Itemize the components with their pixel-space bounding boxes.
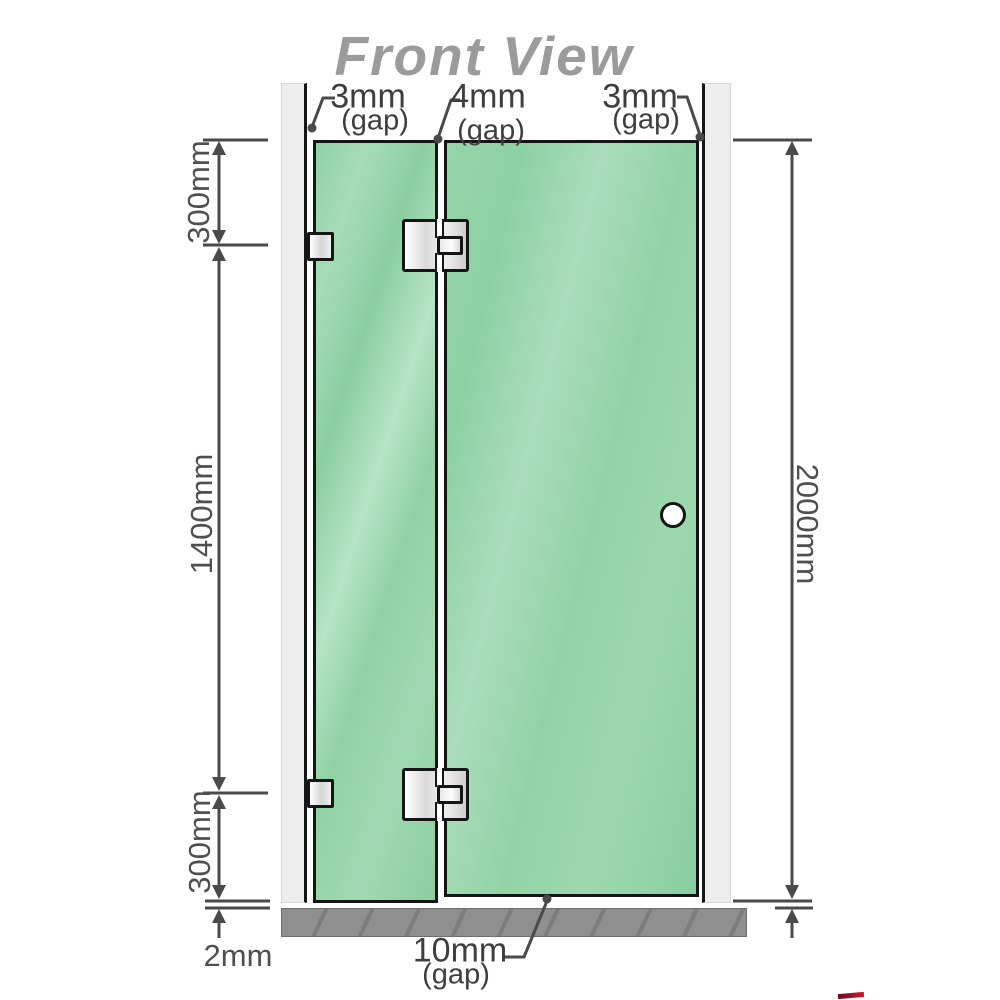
glass-hinge-top [402,219,469,272]
label-bottom-gap-qualifier: (gap) [422,959,490,992]
dim-overall-height: 2000mm [789,464,825,585]
label-right-gap-qualifier: (gap) [612,104,680,137]
hinge-slot [435,802,444,821]
dim-middle-segment: 1400mm [184,454,220,575]
door-knob [660,502,686,528]
label-middle-gap-qualifier: (gap) [457,115,525,148]
floor [281,908,747,937]
hinge-notch [437,785,463,804]
left-wall [281,83,307,903]
hinge-notch [437,236,463,255]
label-middle-gap-value: 4mm [450,78,526,117]
dim-bottom-segment: 300mm [182,790,218,893]
label-left-gap-qualifier: (gap) [341,105,409,138]
shower-screen-diagram: Front View [0,0,1000,1000]
wall-bracket-top [307,232,334,261]
dim-floor-clearance: 2mm [204,938,273,974]
dim-top-segment: 300mm [181,140,217,243]
wall-bracket-bottom [307,779,334,808]
hinge-slot [435,253,444,272]
watermark-fragment [838,992,864,999]
glass-hinge-bottom [402,768,469,821]
right-wall [702,83,731,903]
